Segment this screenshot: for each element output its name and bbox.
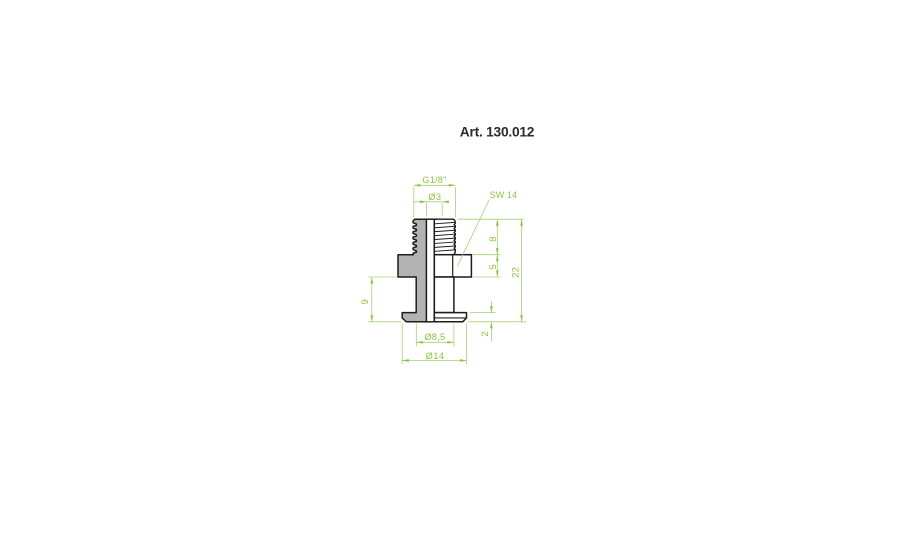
svg-text:2: 2 <box>480 331 491 337</box>
svg-text:SW 14: SW 14 <box>490 190 518 200</box>
svg-text:Ø14: Ø14 <box>426 351 445 361</box>
svg-text:G1/8": G1/8" <box>422 175 446 185</box>
svg-text:22: 22 <box>510 267 521 278</box>
svg-text:8: 8 <box>488 236 499 242</box>
svg-text:Ø3: Ø3 <box>428 192 441 202</box>
svg-text:5: 5 <box>488 264 499 270</box>
svg-text:Ø8,5: Ø8,5 <box>424 332 445 342</box>
svg-text:9: 9 <box>360 299 371 305</box>
svg-text:Art. 130.012: Art. 130.012 <box>460 125 535 140</box>
